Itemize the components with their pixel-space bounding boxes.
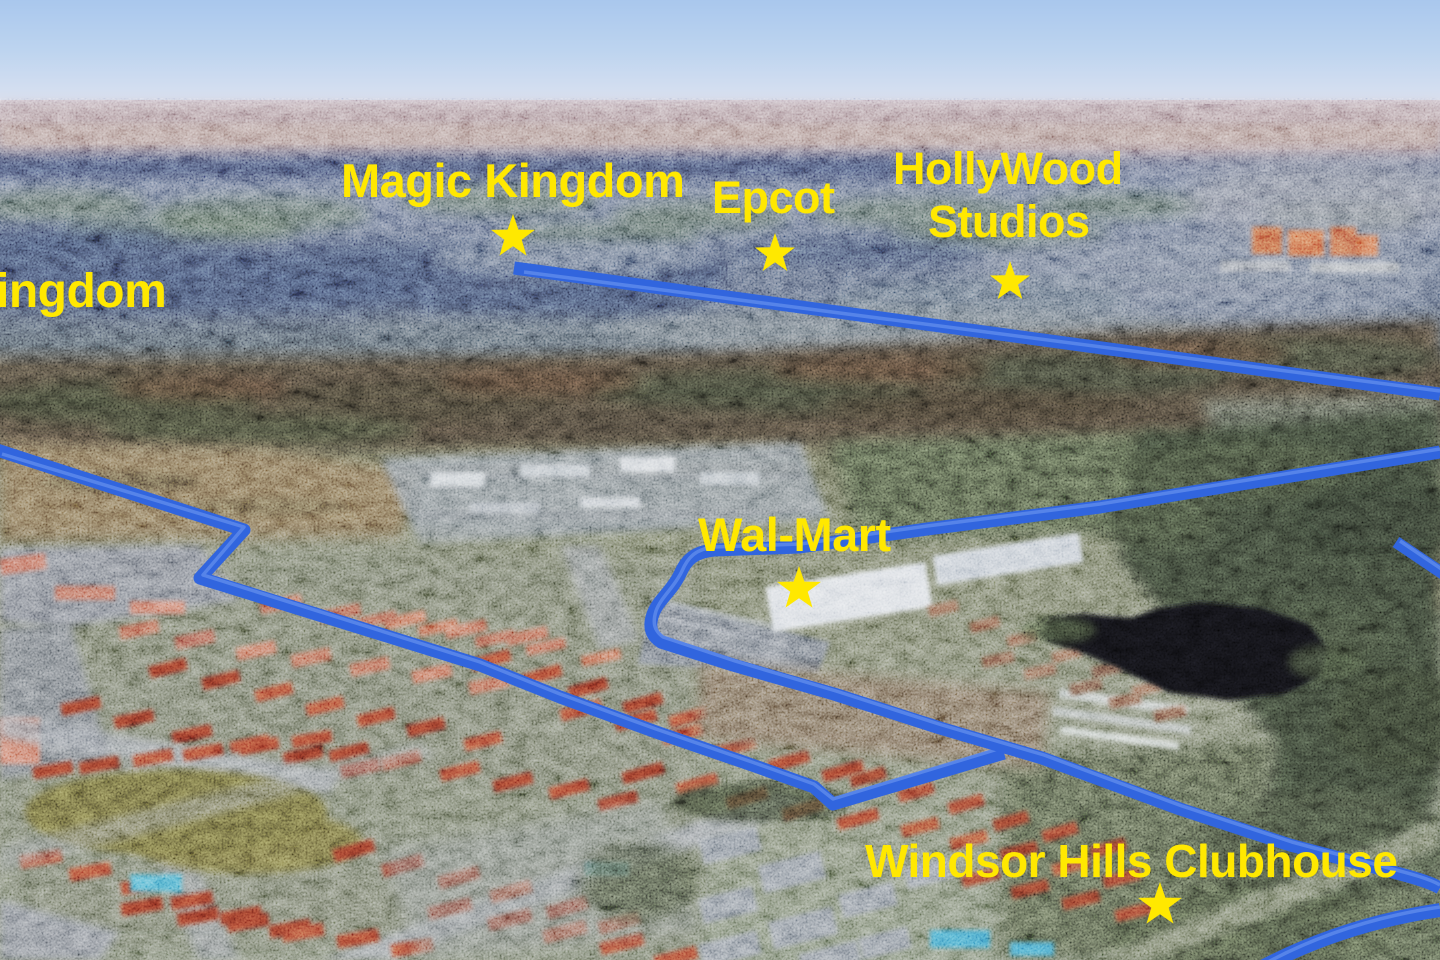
svg-text:Magic Kingdom: Magic Kingdom: [341, 154, 684, 207]
svg-text:ingdom: ingdom: [0, 265, 166, 318]
svg-text:Studios: Studios: [928, 196, 1090, 247]
svg-text:Wal-Mart: Wal-Mart: [698, 508, 892, 561]
svg-text:Epcot: Epcot: [712, 172, 835, 223]
svg-text:Windsor Hills Clubhouse: Windsor Hills Clubhouse: [865, 835, 1397, 887]
svg-text:HollyWood: HollyWood: [893, 143, 1123, 194]
